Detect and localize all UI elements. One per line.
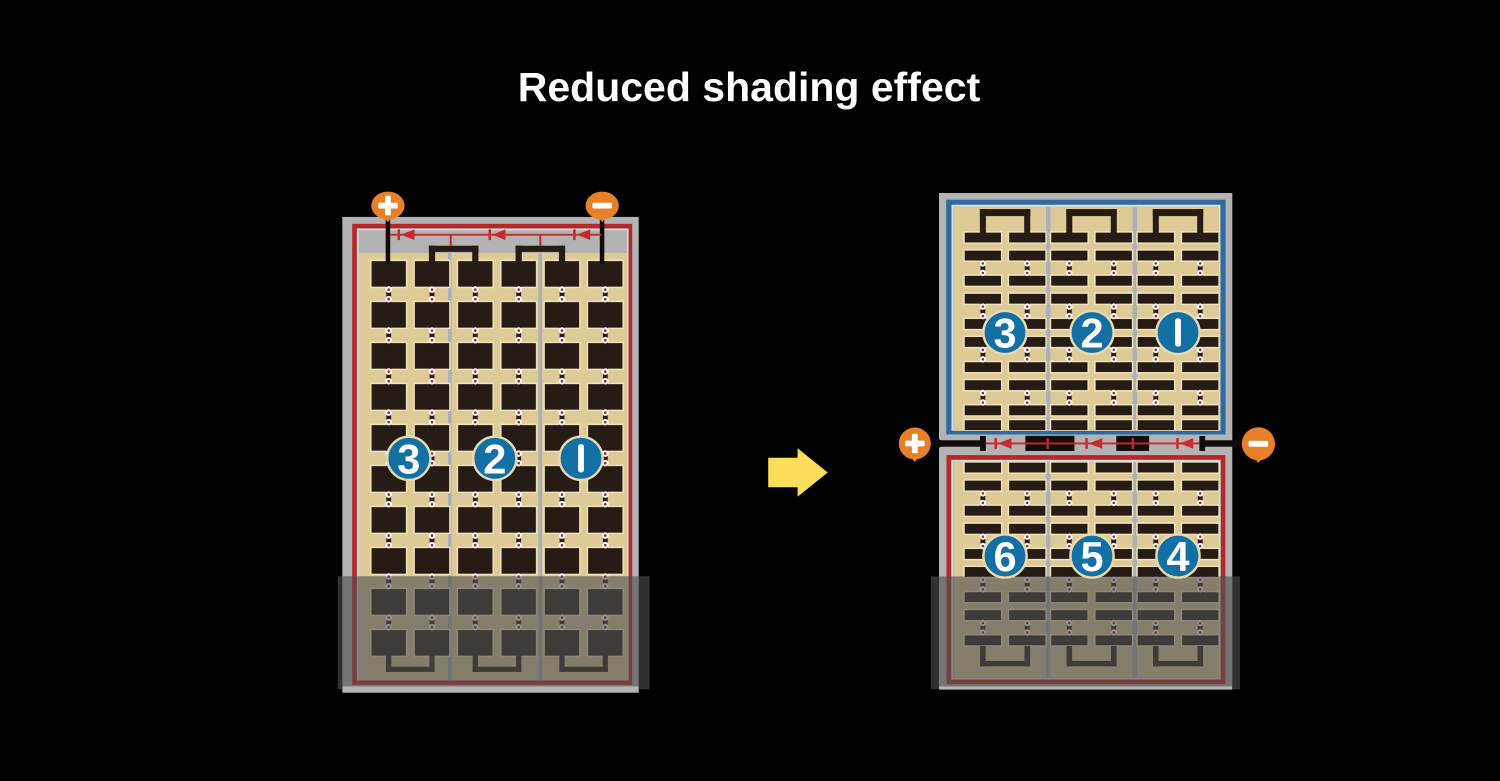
- svg-text:5: 5: [1080, 533, 1103, 580]
- svg-text:6: 6: [993, 533, 1016, 580]
- svg-text:3: 3: [993, 310, 1016, 357]
- svg-text:Reduced shading effect: Reduced shading effect: [518, 64, 981, 110]
- svg-text:3: 3: [397, 436, 420, 483]
- svg-text:2: 2: [1080, 310, 1103, 357]
- svg-text:4: 4: [1166, 533, 1189, 580]
- svg-text:2: 2: [483, 436, 506, 483]
